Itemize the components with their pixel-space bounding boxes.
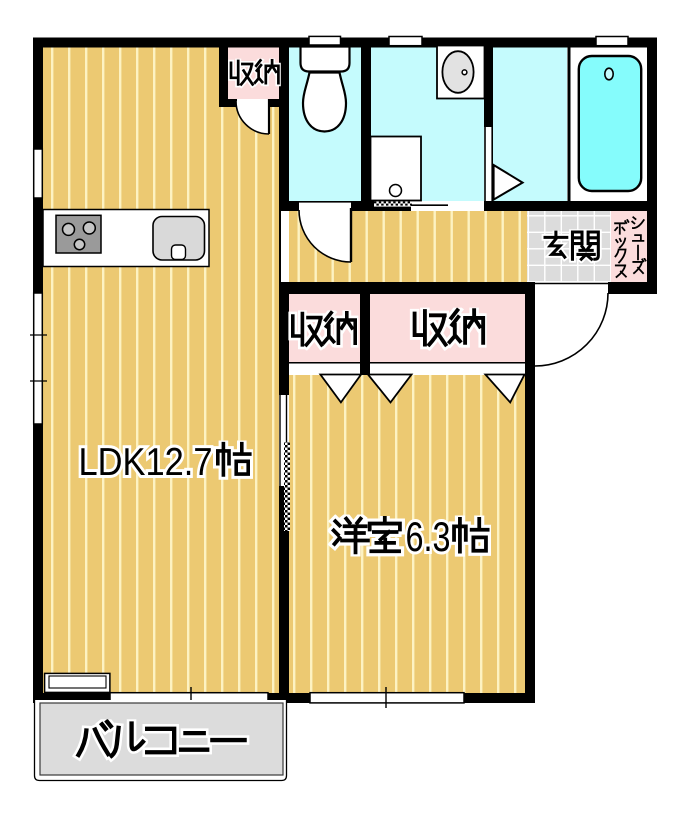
svg-text:6.3: 6.3 xyxy=(406,513,451,560)
svg-text:LDK12.7: LDK12.7 xyxy=(79,441,213,484)
